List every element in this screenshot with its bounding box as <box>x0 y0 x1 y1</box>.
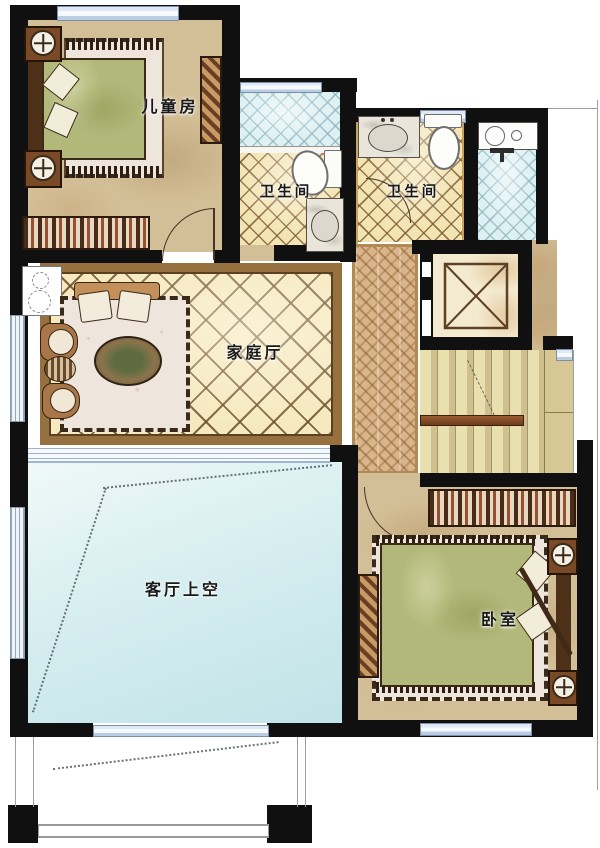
wall-stairs-right-corner <box>543 336 573 350</box>
label-family-hall: 家庭厅 <box>226 339 283 363</box>
wall-bedroom-left <box>342 462 358 737</box>
family-coffee-table <box>94 336 162 386</box>
terrace-corner-left <box>8 805 38 843</box>
children-room-window <box>57 6 179 21</box>
terrace-corner-right <box>267 805 312 843</box>
bath2-faucet-dot-1 <box>381 118 385 122</box>
wall-void-bottom-left <box>10 723 93 737</box>
living-void-window-bottom <box>93 725 269 737</box>
wall-void-bottom-right <box>267 723 348 737</box>
family-cabinet-circle-2 <box>28 290 51 313</box>
bedroom-window <box>420 723 532 736</box>
wall-family-bottom-left <box>10 445 28 462</box>
bath2-faucet-dot-2 <box>390 118 394 122</box>
bedroom-dresser <box>358 574 379 678</box>
stairs-side-window <box>556 349 573 361</box>
bath2-toilet-bowl <box>428 126 460 170</box>
elevator-door-notch-1 <box>422 262 431 277</box>
bedroom-fan-top <box>551 543 575 567</box>
void-top-railing <box>28 448 330 463</box>
terrace-railing-window <box>38 824 269 838</box>
wall-bedroom-top <box>420 473 593 487</box>
terrace-sightline <box>53 741 279 770</box>
stair-landing-divider <box>544 412 573 413</box>
children-lamp-top <box>30 30 56 56</box>
terrace-line-left-1 <box>15 737 16 807</box>
wall-children-bottom <box>10 250 162 263</box>
elevator-door-notch-2 <box>422 300 431 336</box>
label-children-room: 儿童房 <box>141 93 198 117</box>
bath1-sink-basin <box>311 210 339 242</box>
bedroom-wardrobe <box>428 489 576 527</box>
label-bathroom-right: 卫生间 <box>387 181 440 202</box>
family-side-table <box>44 356 76 382</box>
children-dresser <box>200 56 222 144</box>
floor-plan: 儿童房 卫生间 卫生间 家庭厅 客厅上空 卧室 <box>0 0 600 848</box>
stair-treads <box>420 350 544 473</box>
bath1-door-opening <box>240 245 274 261</box>
wall-bath2-right <box>464 108 478 244</box>
children-door-leaf <box>213 208 215 260</box>
site-boundary-top-right <box>548 108 597 109</box>
label-living-void: 客厅上空 <box>145 576 221 600</box>
terrace-line-right-1 <box>297 737 298 807</box>
children-wardrobe <box>22 216 150 250</box>
family-sofa-cushion-2 <box>116 290 152 323</box>
shower-window <box>240 82 322 93</box>
terrace-line-left-2 <box>33 737 34 807</box>
terrace-line-right-2 <box>305 737 306 807</box>
stair-right-edge <box>573 350 574 473</box>
laundry-faucet-stub <box>500 153 504 162</box>
wall-children-right <box>222 5 240 263</box>
label-bathroom-left: 卫生间 <box>260 181 313 202</box>
bedroom-fan-bottom <box>552 675 576 699</box>
laundry-drain <box>511 130 522 141</box>
laundry-basin <box>485 126 505 146</box>
site-boundary-right <box>597 100 598 790</box>
children-lamp-bottom <box>30 155 56 181</box>
wall-elevator-right <box>518 240 532 350</box>
corridor-parquet-floor <box>352 244 418 474</box>
bath2-sink-basin <box>368 124 408 152</box>
elevator-side-column <box>532 240 557 350</box>
family-cabinet-circle-1 <box>32 272 49 289</box>
label-bedroom: 卧室 <box>481 606 519 630</box>
wall-elevator-bottom <box>420 337 532 350</box>
family-armchair-2-seat <box>50 388 76 413</box>
stairs-handrail <box>420 415 524 426</box>
wall-bedroom-right <box>577 440 593 737</box>
wall-family-bottom-right <box>330 445 358 462</box>
children-rug-fringe-bottom <box>66 166 162 178</box>
family-hall-window <box>10 315 25 422</box>
family-armchair-1-seat <box>48 329 74 355</box>
shower-area-floor <box>230 90 342 146</box>
children-bed-headboard <box>28 58 42 156</box>
family-sofa-cushion-1 <box>77 290 113 323</box>
children-rug-fringe-top <box>66 38 162 50</box>
bedroom-door-gap <box>358 473 420 487</box>
living-void-window-left <box>10 507 25 659</box>
elevator-shaft-cross <box>440 259 512 333</box>
